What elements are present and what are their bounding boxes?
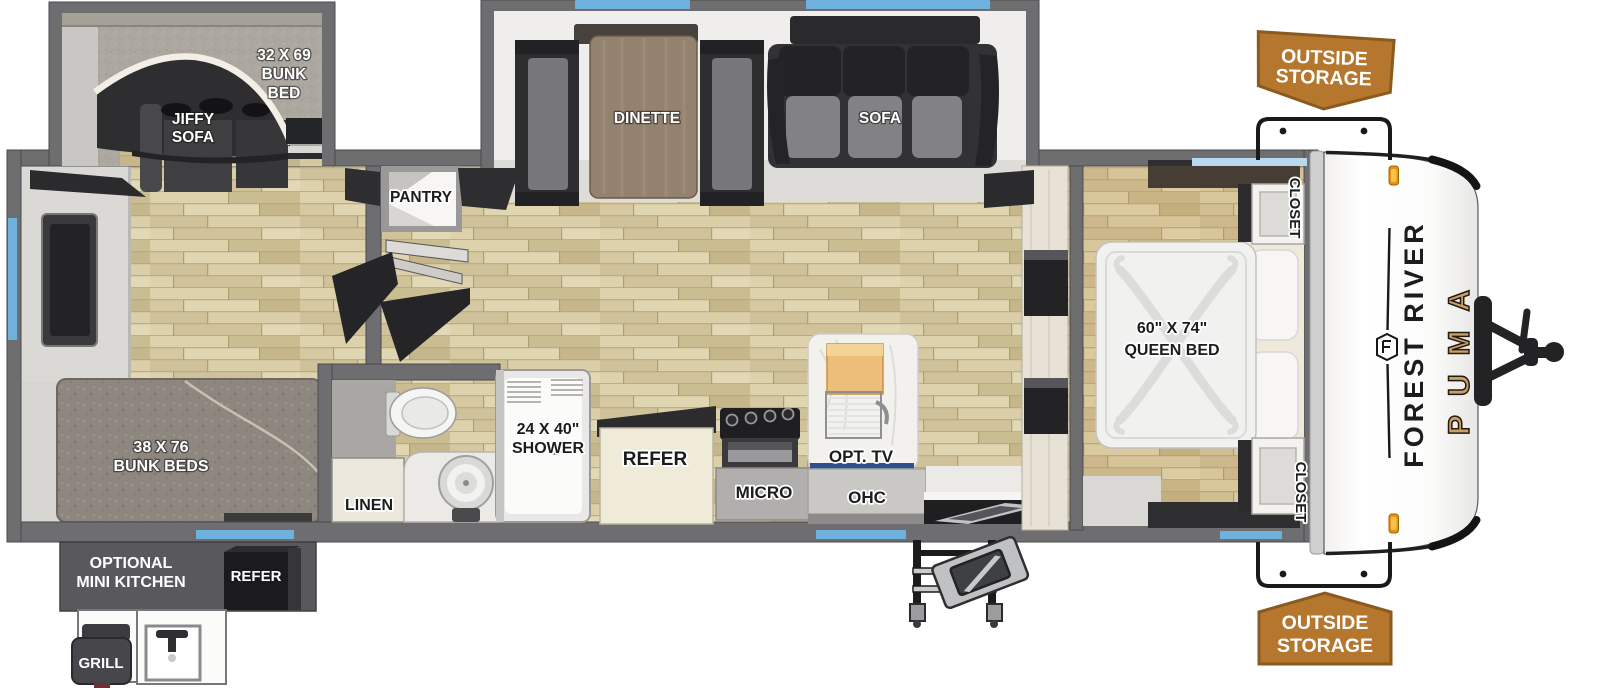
svg-text:BUNK BEDS: BUNK BEDS — [113, 458, 208, 475]
svg-text:32 X 69: 32 X 69 — [257, 47, 311, 64]
svg-text:OUTSIDE: OUTSIDE — [1282, 612, 1369, 634]
svg-text:OHC: OHC — [848, 488, 886, 507]
svg-text:DINETTE: DINETTE — [614, 110, 680, 127]
svg-text:STORAGE: STORAGE — [1275, 65, 1372, 90]
svg-text:STORAGE: STORAGE — [1277, 635, 1373, 657]
svg-text:REFER: REFER — [231, 568, 282, 585]
svg-text:CLOSET: CLOSET — [1292, 462, 1309, 523]
svg-text:FOREST RIVER: FOREST RIVER — [1399, 220, 1429, 468]
svg-text:GRILL: GRILL — [79, 655, 124, 672]
svg-text:REFER: REFER — [623, 449, 688, 470]
svg-text:60" X 74": 60" X 74" — [1137, 320, 1207, 337]
svg-text:JIFFY: JIFFY — [172, 111, 215, 128]
svg-text:LINEN: LINEN — [345, 497, 393, 514]
svg-text:OPTIONAL: OPTIONAL — [90, 555, 173, 572]
svg-text:OPT. TV: OPT. TV — [829, 447, 894, 466]
svg-text:38 X 76: 38 X 76 — [133, 439, 188, 456]
svg-text:PUMA: PUMA — [1443, 271, 1476, 435]
svg-text:SOFA: SOFA — [172, 129, 214, 146]
svg-text:SHOWER: SHOWER — [512, 440, 584, 457]
svg-text:MINI KITCHEN: MINI KITCHEN — [76, 574, 185, 591]
svg-text:24 X 40": 24 X 40" — [517, 421, 580, 438]
svg-text:BUNK: BUNK — [262, 66, 308, 83]
svg-text:PANTRY: PANTRY — [390, 189, 453, 206]
svg-text:MICRO: MICRO — [736, 483, 793, 502]
svg-text:QUEEN BED: QUEEN BED — [1124, 342, 1219, 359]
svg-text:SOFA: SOFA — [859, 110, 901, 127]
svg-text:CLOSET: CLOSET — [1286, 178, 1303, 239]
svg-text:BED: BED — [268, 85, 301, 102]
